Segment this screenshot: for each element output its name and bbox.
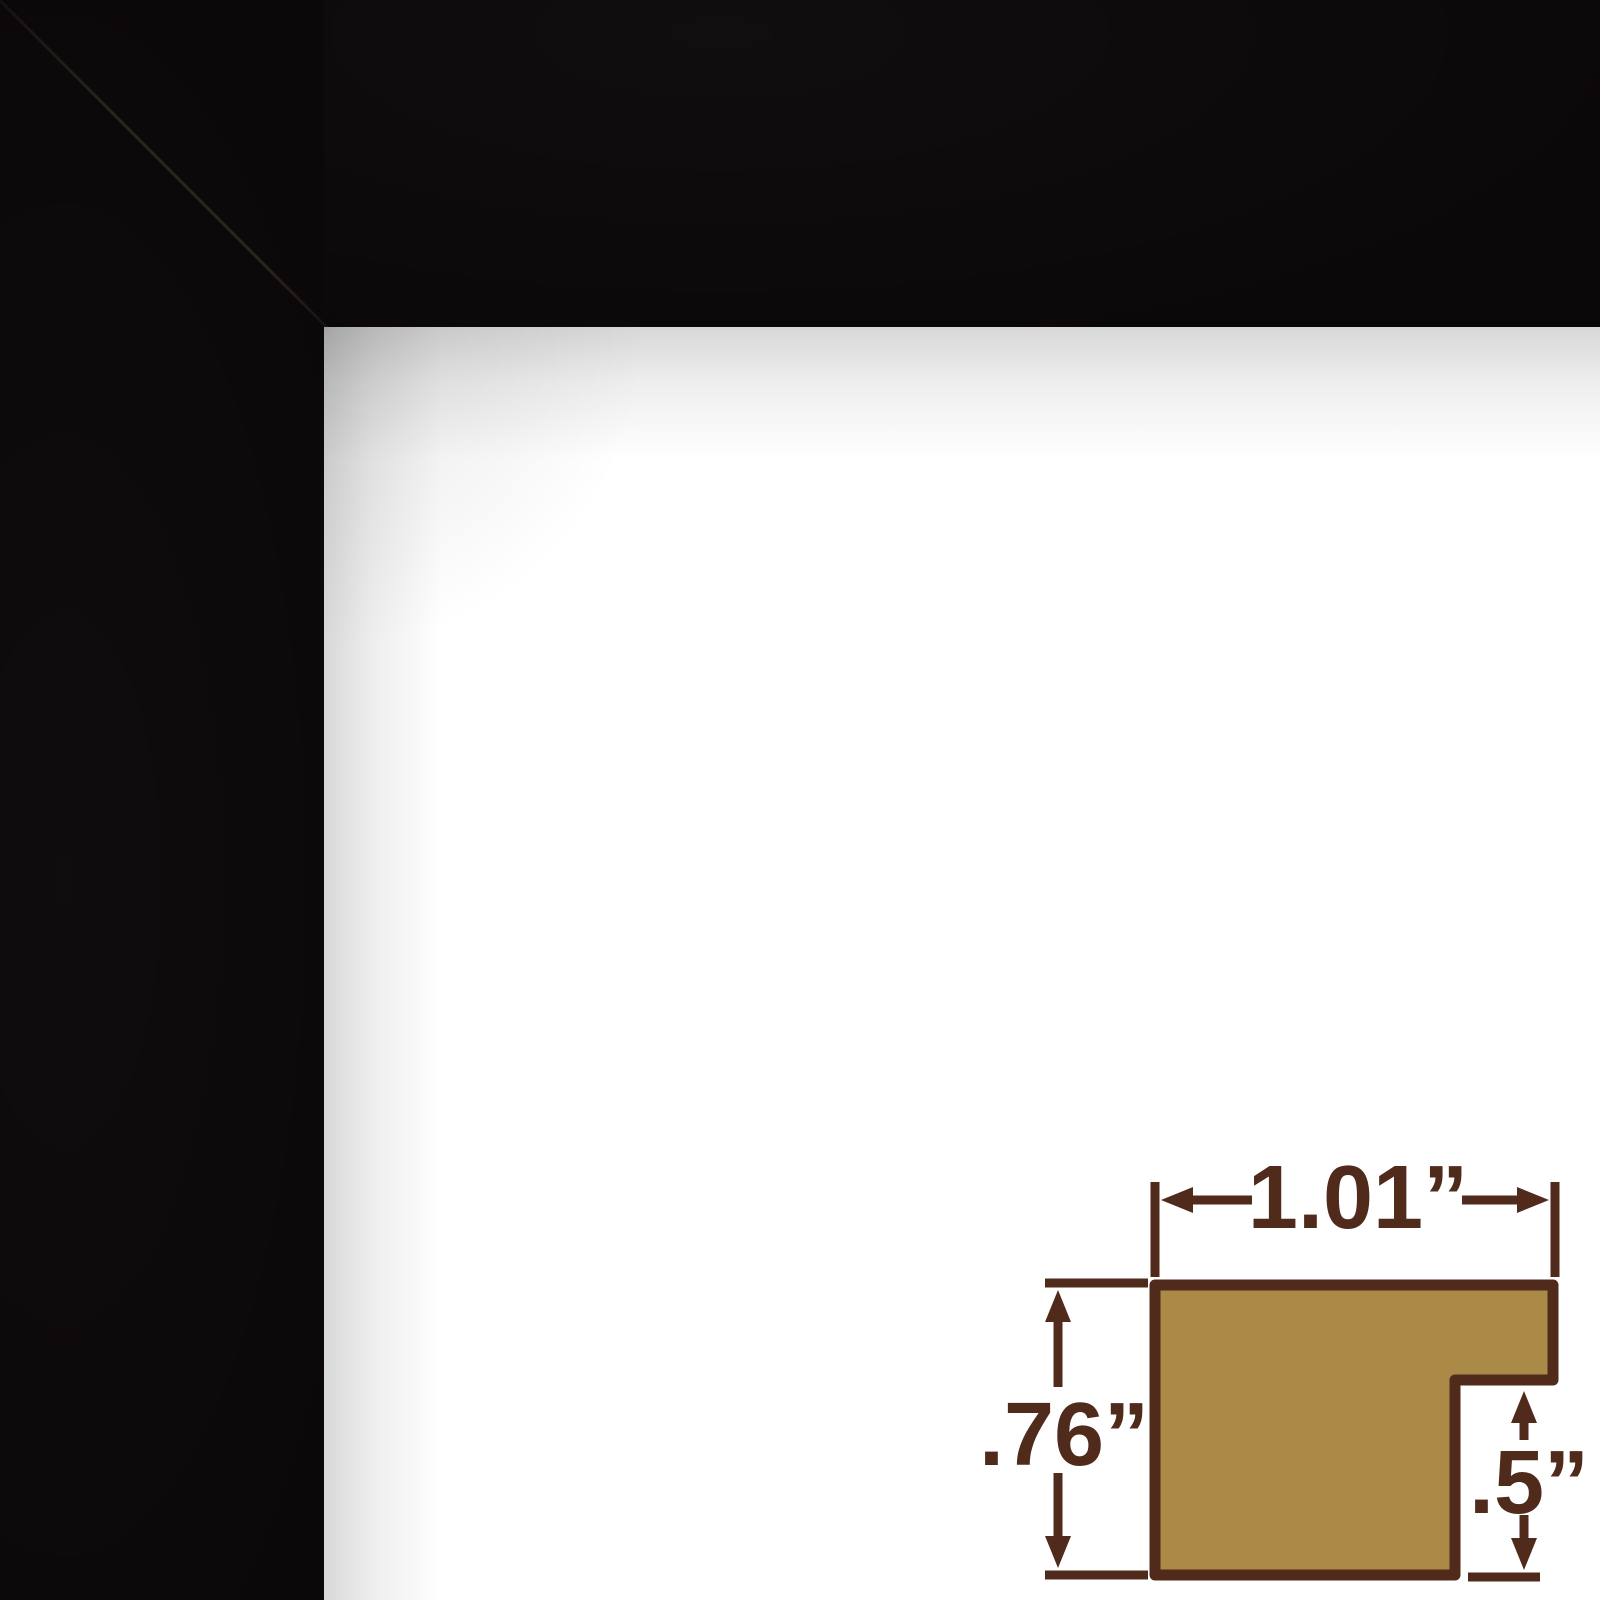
height-dimension: .76”	[979, 1283, 1149, 1575]
rabbet-dimension: .5”	[1468, 1391, 1589, 1577]
inner-shadow-corner	[322, 326, 642, 646]
frame-left-bar	[0, 0, 324, 1600]
profile-cross-section-diagram: 1.01” .76” .5”	[950, 1100, 1600, 1600]
width-dimension: 1.01”	[1155, 1148, 1555, 1277]
rabbet-dimension-label: .5”	[1469, 1433, 1589, 1533]
height-dimension-label: .76”	[979, 1385, 1149, 1485]
product-image: 1.01” .76” .5”	[0, 0, 1600, 1600]
width-dimension-label: 1.01”	[1248, 1148, 1468, 1248]
